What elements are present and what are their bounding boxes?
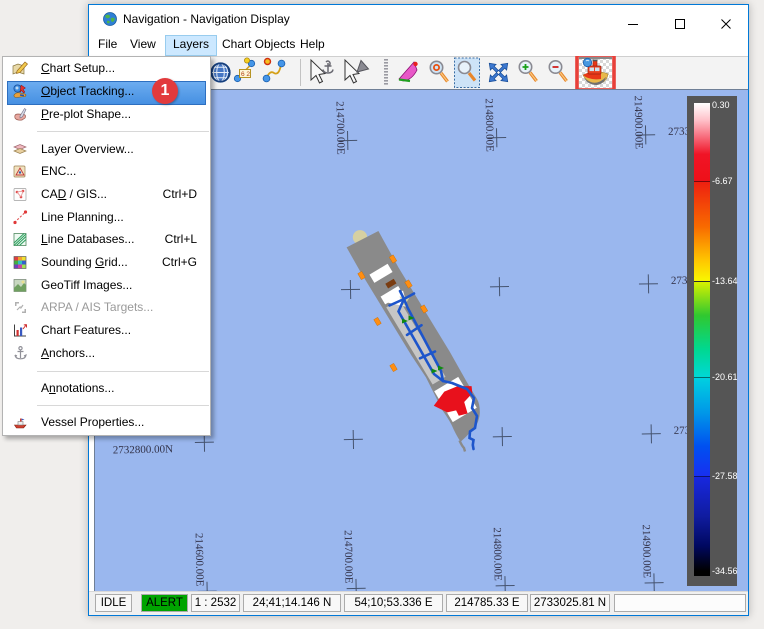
svg-text:6 2: 6 2: [241, 71, 250, 78]
